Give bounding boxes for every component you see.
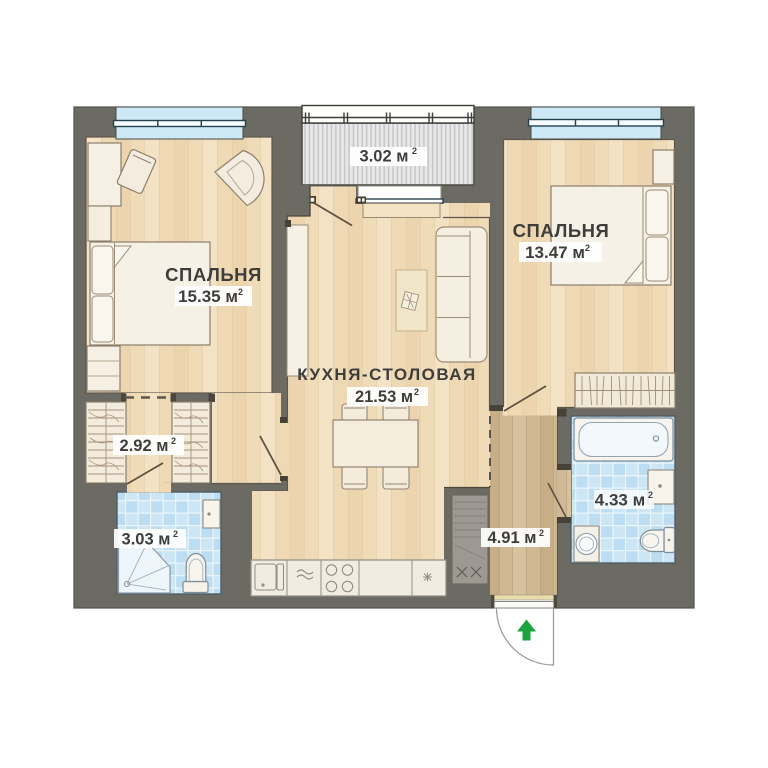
svg-text:2: 2 <box>173 529 178 539</box>
svg-text:2: 2 <box>414 387 419 397</box>
svg-text:2: 2 <box>585 243 590 253</box>
svg-text:КУХНЯ-СТОЛОВАЯ: КУХНЯ-СТОЛОВАЯ <box>297 365 477 384</box>
svg-text:13.47 м: 13.47 м <box>525 243 585 262</box>
svg-text:2: 2 <box>171 436 176 446</box>
svg-text:4.91 м: 4.91 м <box>488 529 537 547</box>
svg-text:СПАЛЬНЯ: СПАЛЬНЯ <box>513 220 610 241</box>
svg-text:СПАЛЬНЯ: СПАЛЬНЯ <box>165 264 262 285</box>
svg-text:2: 2 <box>648 490 653 500</box>
svg-text:15.35 м: 15.35 м <box>178 287 238 306</box>
svg-text:2: 2 <box>539 528 544 538</box>
svg-text:3.02 м: 3.02 м <box>360 148 409 166</box>
svg-text:2: 2 <box>238 287 243 297</box>
svg-text:3.03 м: 3.03 м <box>122 531 171 549</box>
svg-text:2: 2 <box>412 146 417 156</box>
svg-text:4.33 м: 4.33 м <box>595 491 645 510</box>
svg-text:2.92 м: 2.92 м <box>120 437 169 455</box>
svg-text:21.53 м: 21.53 м <box>355 388 413 406</box>
